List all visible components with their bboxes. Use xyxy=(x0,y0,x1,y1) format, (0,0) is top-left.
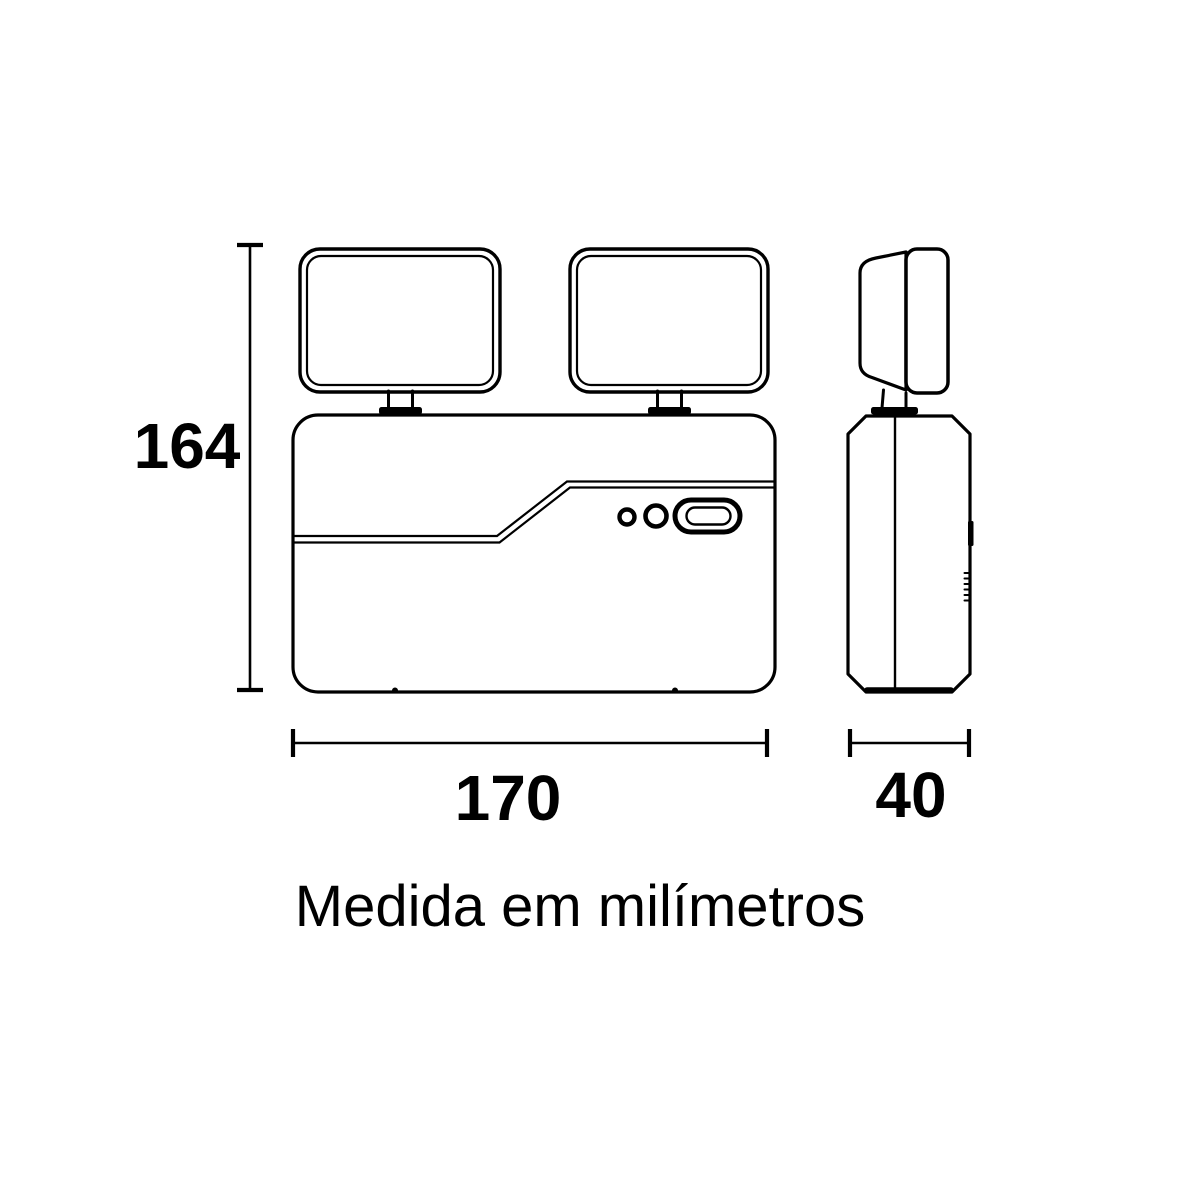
lamp-head-left-outer-frame xyxy=(300,249,500,392)
stalk-collar xyxy=(379,407,422,415)
width-dimension: 170 xyxy=(293,729,767,834)
emergency-light-dimension-drawing: 164 170 40 Medida em milímetros xyxy=(0,0,1200,1200)
body-front xyxy=(293,415,775,692)
technical-drawing-page: 164 170 40 Medida em milímetros xyxy=(0,0,1200,1200)
lamp-head-side-lens xyxy=(906,249,948,393)
lamp-stalk-right xyxy=(648,391,691,415)
height-dimension-label: 164 xyxy=(134,410,241,482)
front-view xyxy=(293,249,775,694)
bottom-foot-right xyxy=(672,688,678,694)
side-switch-bump xyxy=(968,521,974,546)
bottom-foot-left xyxy=(392,688,398,694)
units-caption: Medida em milímetros xyxy=(295,874,865,939)
stalk-left-edge xyxy=(882,390,884,408)
indicator-led-large xyxy=(646,506,667,527)
depth-dimension: 40 xyxy=(850,729,969,831)
lamp-head-side xyxy=(860,249,948,393)
lamp-stalk-side xyxy=(871,390,918,415)
lamp-head-right xyxy=(570,249,768,392)
body-side xyxy=(848,416,970,692)
lamp-stalk-left xyxy=(379,391,422,415)
width-dimension-label: 170 xyxy=(455,762,562,834)
lamp-head-right-outer-frame xyxy=(570,249,768,392)
stalk-collar xyxy=(871,407,918,415)
lamp-head-side-back xyxy=(860,252,906,390)
indicator-led-small xyxy=(620,510,635,525)
depth-dimension-label: 40 xyxy=(875,759,946,831)
stalk-collar xyxy=(648,407,691,415)
lamp-head-left xyxy=(300,249,500,392)
side-view xyxy=(848,249,974,692)
height-dimension: 164 xyxy=(134,245,263,690)
